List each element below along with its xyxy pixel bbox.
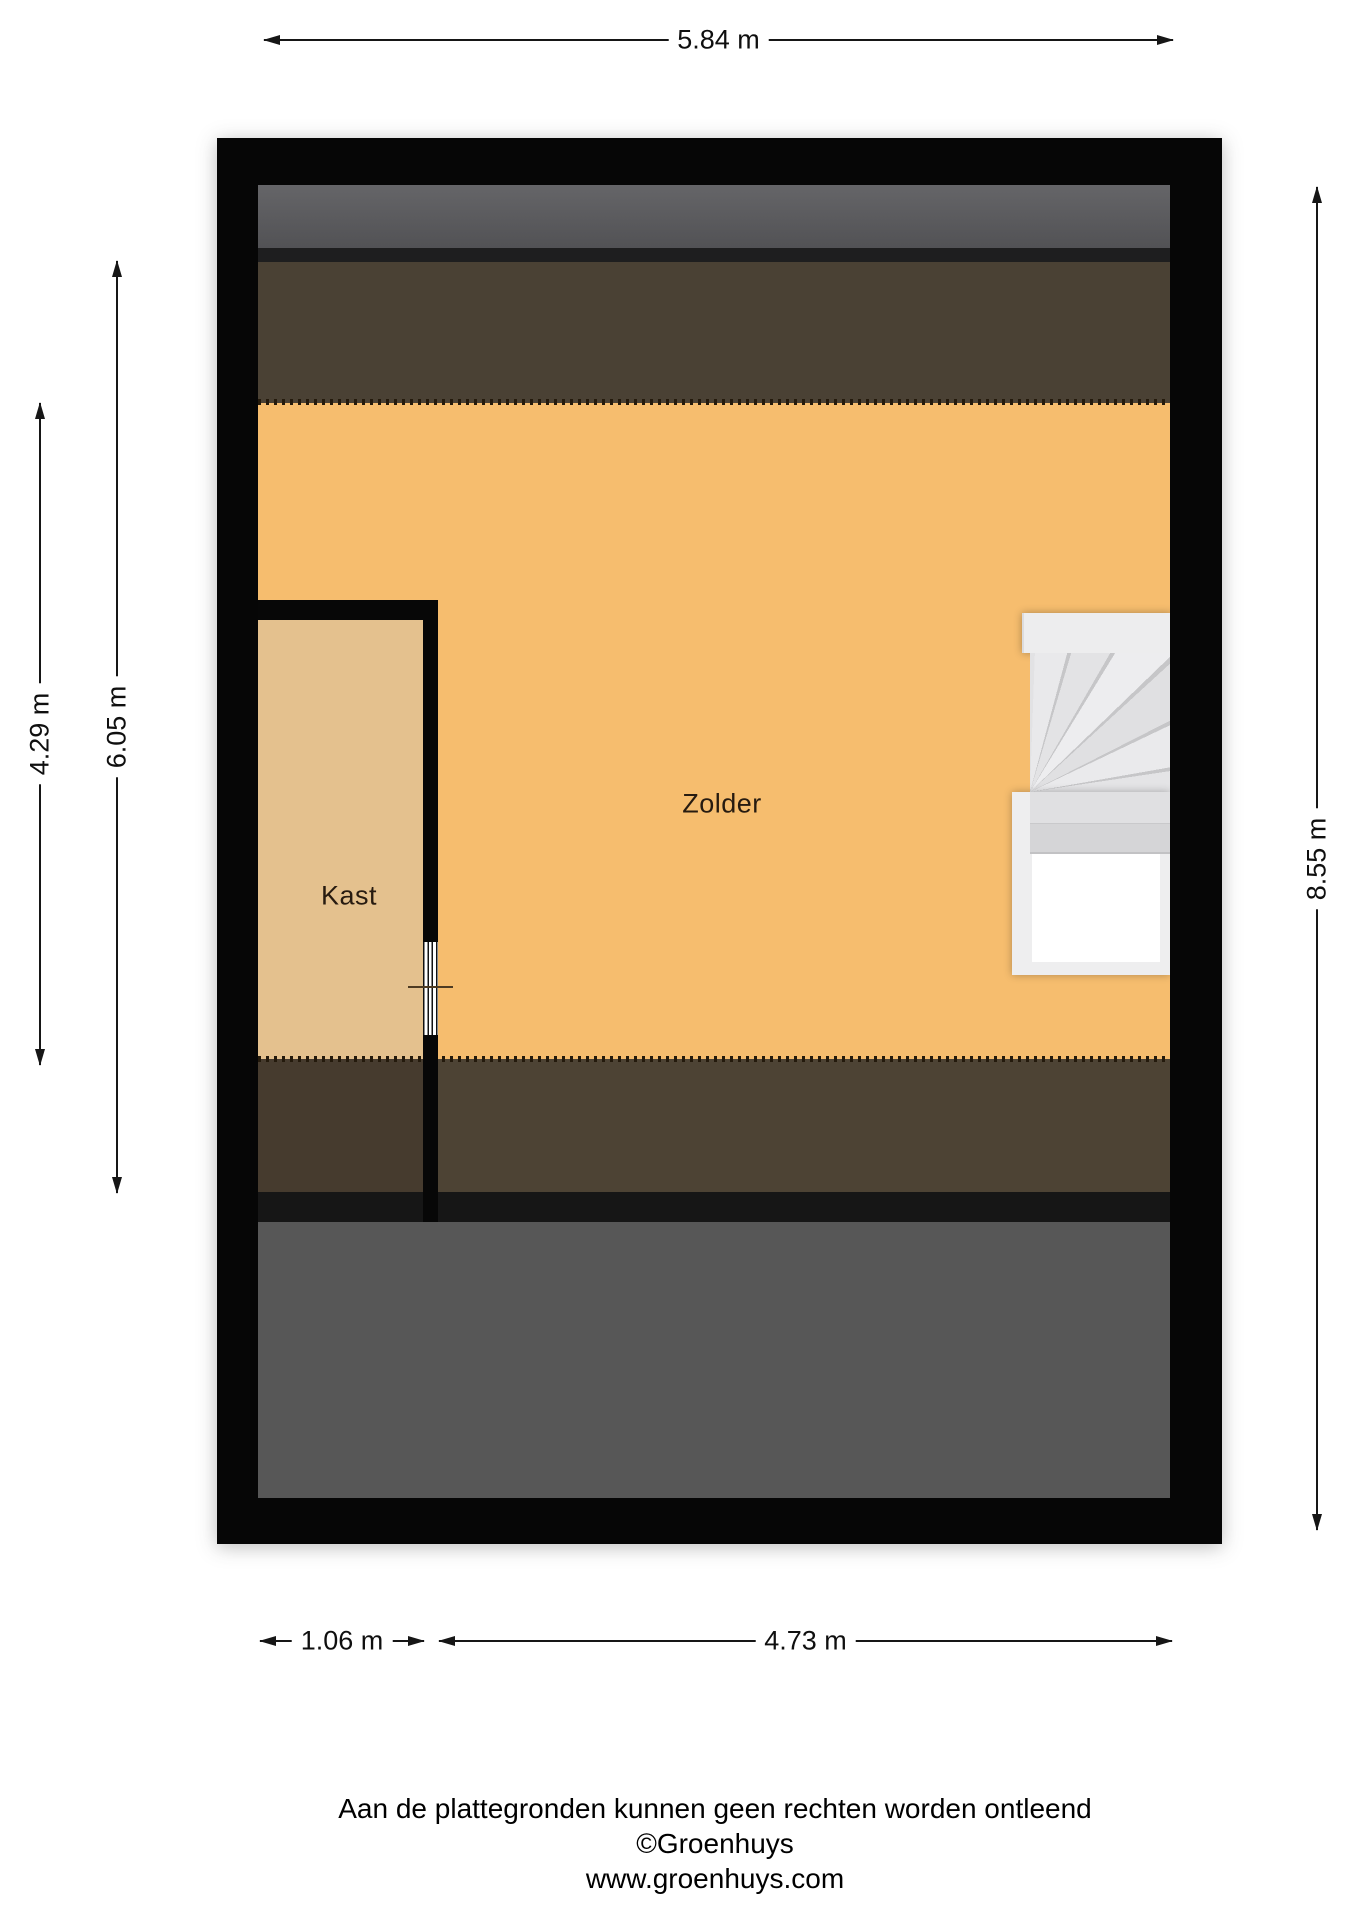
floorplan-page: 5.84 m 4.29 m 6.05 m 8.55 m [0, 0, 1358, 1920]
stairs-opening [1032, 854, 1160, 962]
kast-top-wall [258, 600, 438, 620]
dimension-left-outer: 4.29 m [39, 403, 41, 1065]
dimension-label: 4.29 m [25, 684, 56, 785]
dimension-label: 6.05 m [102, 677, 133, 778]
roofline-zigzag-top [258, 399, 1170, 405]
dimension-bottom-right: 4.73 m [439, 1640, 1172, 1642]
arrowhead-left-icon [259, 1636, 276, 1646]
footer-website: www.groenhuys.com [338, 1861, 1091, 1896]
stairs-landing-bar [1022, 613, 1170, 653]
roofline-zigzag-bottom [258, 1056, 1170, 1062]
floorplan-interior: Zolder Kast [258, 185, 1170, 1498]
kast-right-wall-lower [423, 1035, 438, 1222]
lower-floor-gray [258, 1222, 1170, 1498]
room-label-zolder: Zolder [682, 789, 762, 820]
room-kast-floor [258, 620, 423, 1062]
dimension-label: 5.84 m [668, 25, 769, 56]
roof-band-dark-strip [258, 248, 1170, 262]
footer-copyright: ©Groenhuys [338, 1826, 1091, 1861]
kast-door [423, 942, 438, 1035]
arrowhead-left-icon [263, 35, 280, 45]
dimension-label: 8.55 m [1302, 808, 1333, 909]
arrowhead-down-icon [112, 1177, 122, 1194]
stairs-tread [1030, 792, 1170, 824]
floorplan: Zolder Kast [217, 138, 1222, 1544]
roof-band-gray [258, 185, 1170, 248]
dimension-bottom-left: 1.06 m [260, 1640, 424, 1642]
stairs-tread [1030, 824, 1170, 854]
arrowhead-right-icon [408, 1636, 425, 1646]
arrowhead-down-icon [1312, 1514, 1322, 1531]
sloped-roof-bottom-left [258, 1059, 423, 1192]
kast-door-swing-line [408, 986, 453, 988]
room-label-kast: Kast [321, 881, 377, 912]
stairs-lower-flight [1012, 792, 1170, 975]
stairs-winder-treads [1030, 653, 1170, 792]
dimension-left-inner: 6.05 m [116, 261, 118, 1193]
dimension-top: 5.84 m [264, 39, 1173, 41]
footer: Aan de plattegronden kunnen geen rechten… [338, 1791, 1091, 1896]
arrowhead-up-icon [1312, 186, 1322, 203]
staircase [1012, 613, 1170, 975]
dimension-right: 8.55 m [1316, 187, 1318, 1530]
dimension-label: 1.06 m [292, 1626, 393, 1657]
kast-right-wall-upper [423, 600, 438, 942]
dimension-label: 4.73 m [755, 1626, 856, 1657]
arrowhead-right-icon [1156, 1636, 1173, 1646]
arrowhead-up-icon [112, 260, 122, 277]
arrowhead-left-icon [438, 1636, 455, 1646]
sloped-roof-bottom-right [438, 1059, 1170, 1192]
arrowhead-right-icon [1157, 35, 1174, 45]
footer-disclaimer: Aan de plattegronden kunnen geen rechten… [338, 1791, 1091, 1826]
arrowhead-down-icon [35, 1049, 45, 1066]
interior-wall-bottom [258, 1192, 1170, 1222]
arrowhead-up-icon [35, 402, 45, 419]
sloped-roof-top [258, 262, 1170, 403]
